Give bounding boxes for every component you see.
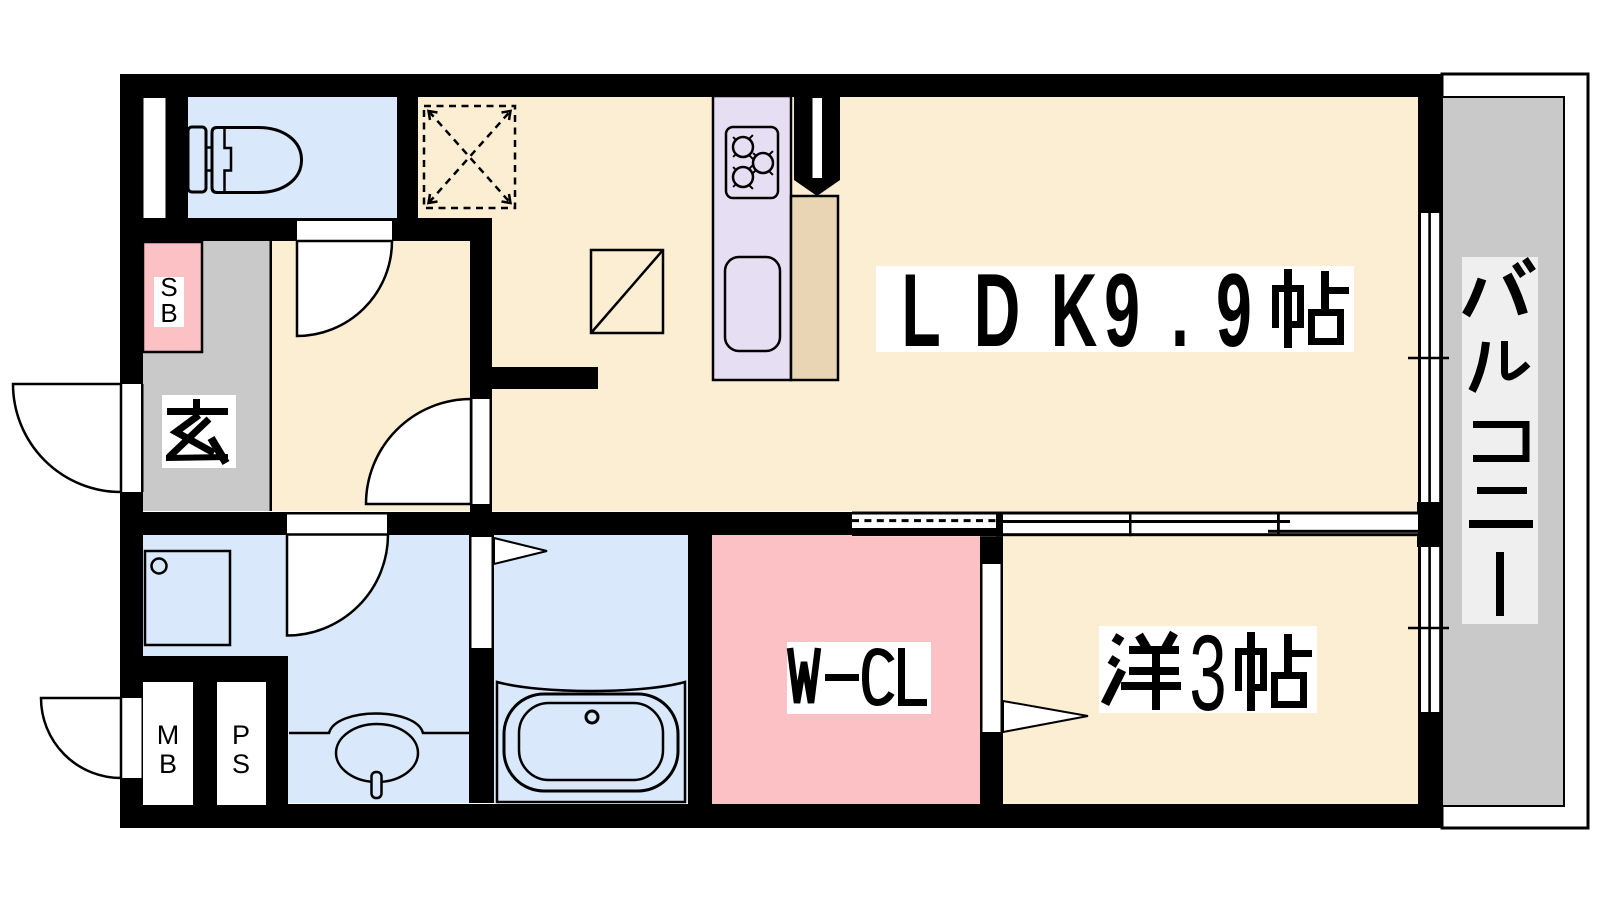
svg-text:M: M [157, 720, 180, 750]
svg-text:L: L [901, 253, 940, 368]
svg-text:9: 9 [1104, 253, 1140, 368]
svg-text:P: P [232, 720, 250, 750]
svg-text:B: B [160, 298, 177, 328]
svg-text:3: 3 [1189, 614, 1226, 734]
svg-text:9: 9 [1216, 253, 1252, 368]
svg-text:S: S [232, 749, 250, 779]
svg-text:B: B [159, 749, 177, 779]
svg-text:.: . [1171, 253, 1189, 368]
svg-text:D: D [974, 253, 1021, 368]
svg-text:K: K [1051, 253, 1098, 368]
